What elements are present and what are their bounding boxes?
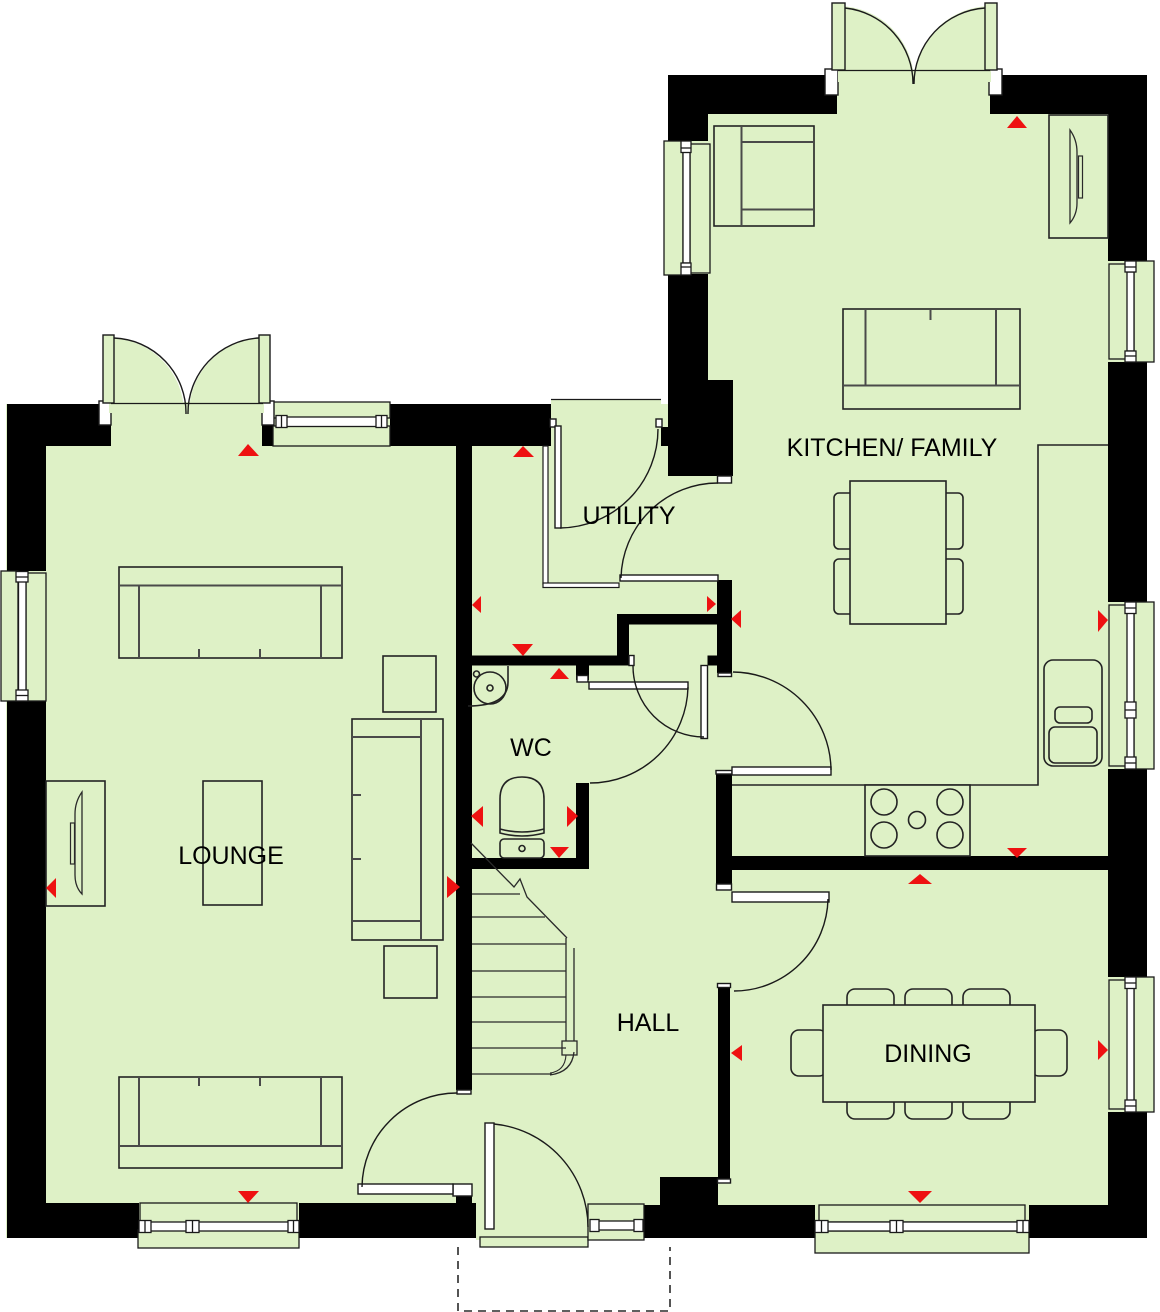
svg-text:KITCHEN/ FAMILY: KITCHEN/ FAMILY xyxy=(787,434,998,462)
svg-text:UTILITY: UTILITY xyxy=(582,502,675,530)
svg-text:HALL: HALL xyxy=(617,1009,680,1037)
svg-text:LOUNGE: LOUNGE xyxy=(178,842,284,870)
svg-text:DINING: DINING xyxy=(884,1040,972,1068)
svg-text:WC: WC xyxy=(510,734,552,762)
